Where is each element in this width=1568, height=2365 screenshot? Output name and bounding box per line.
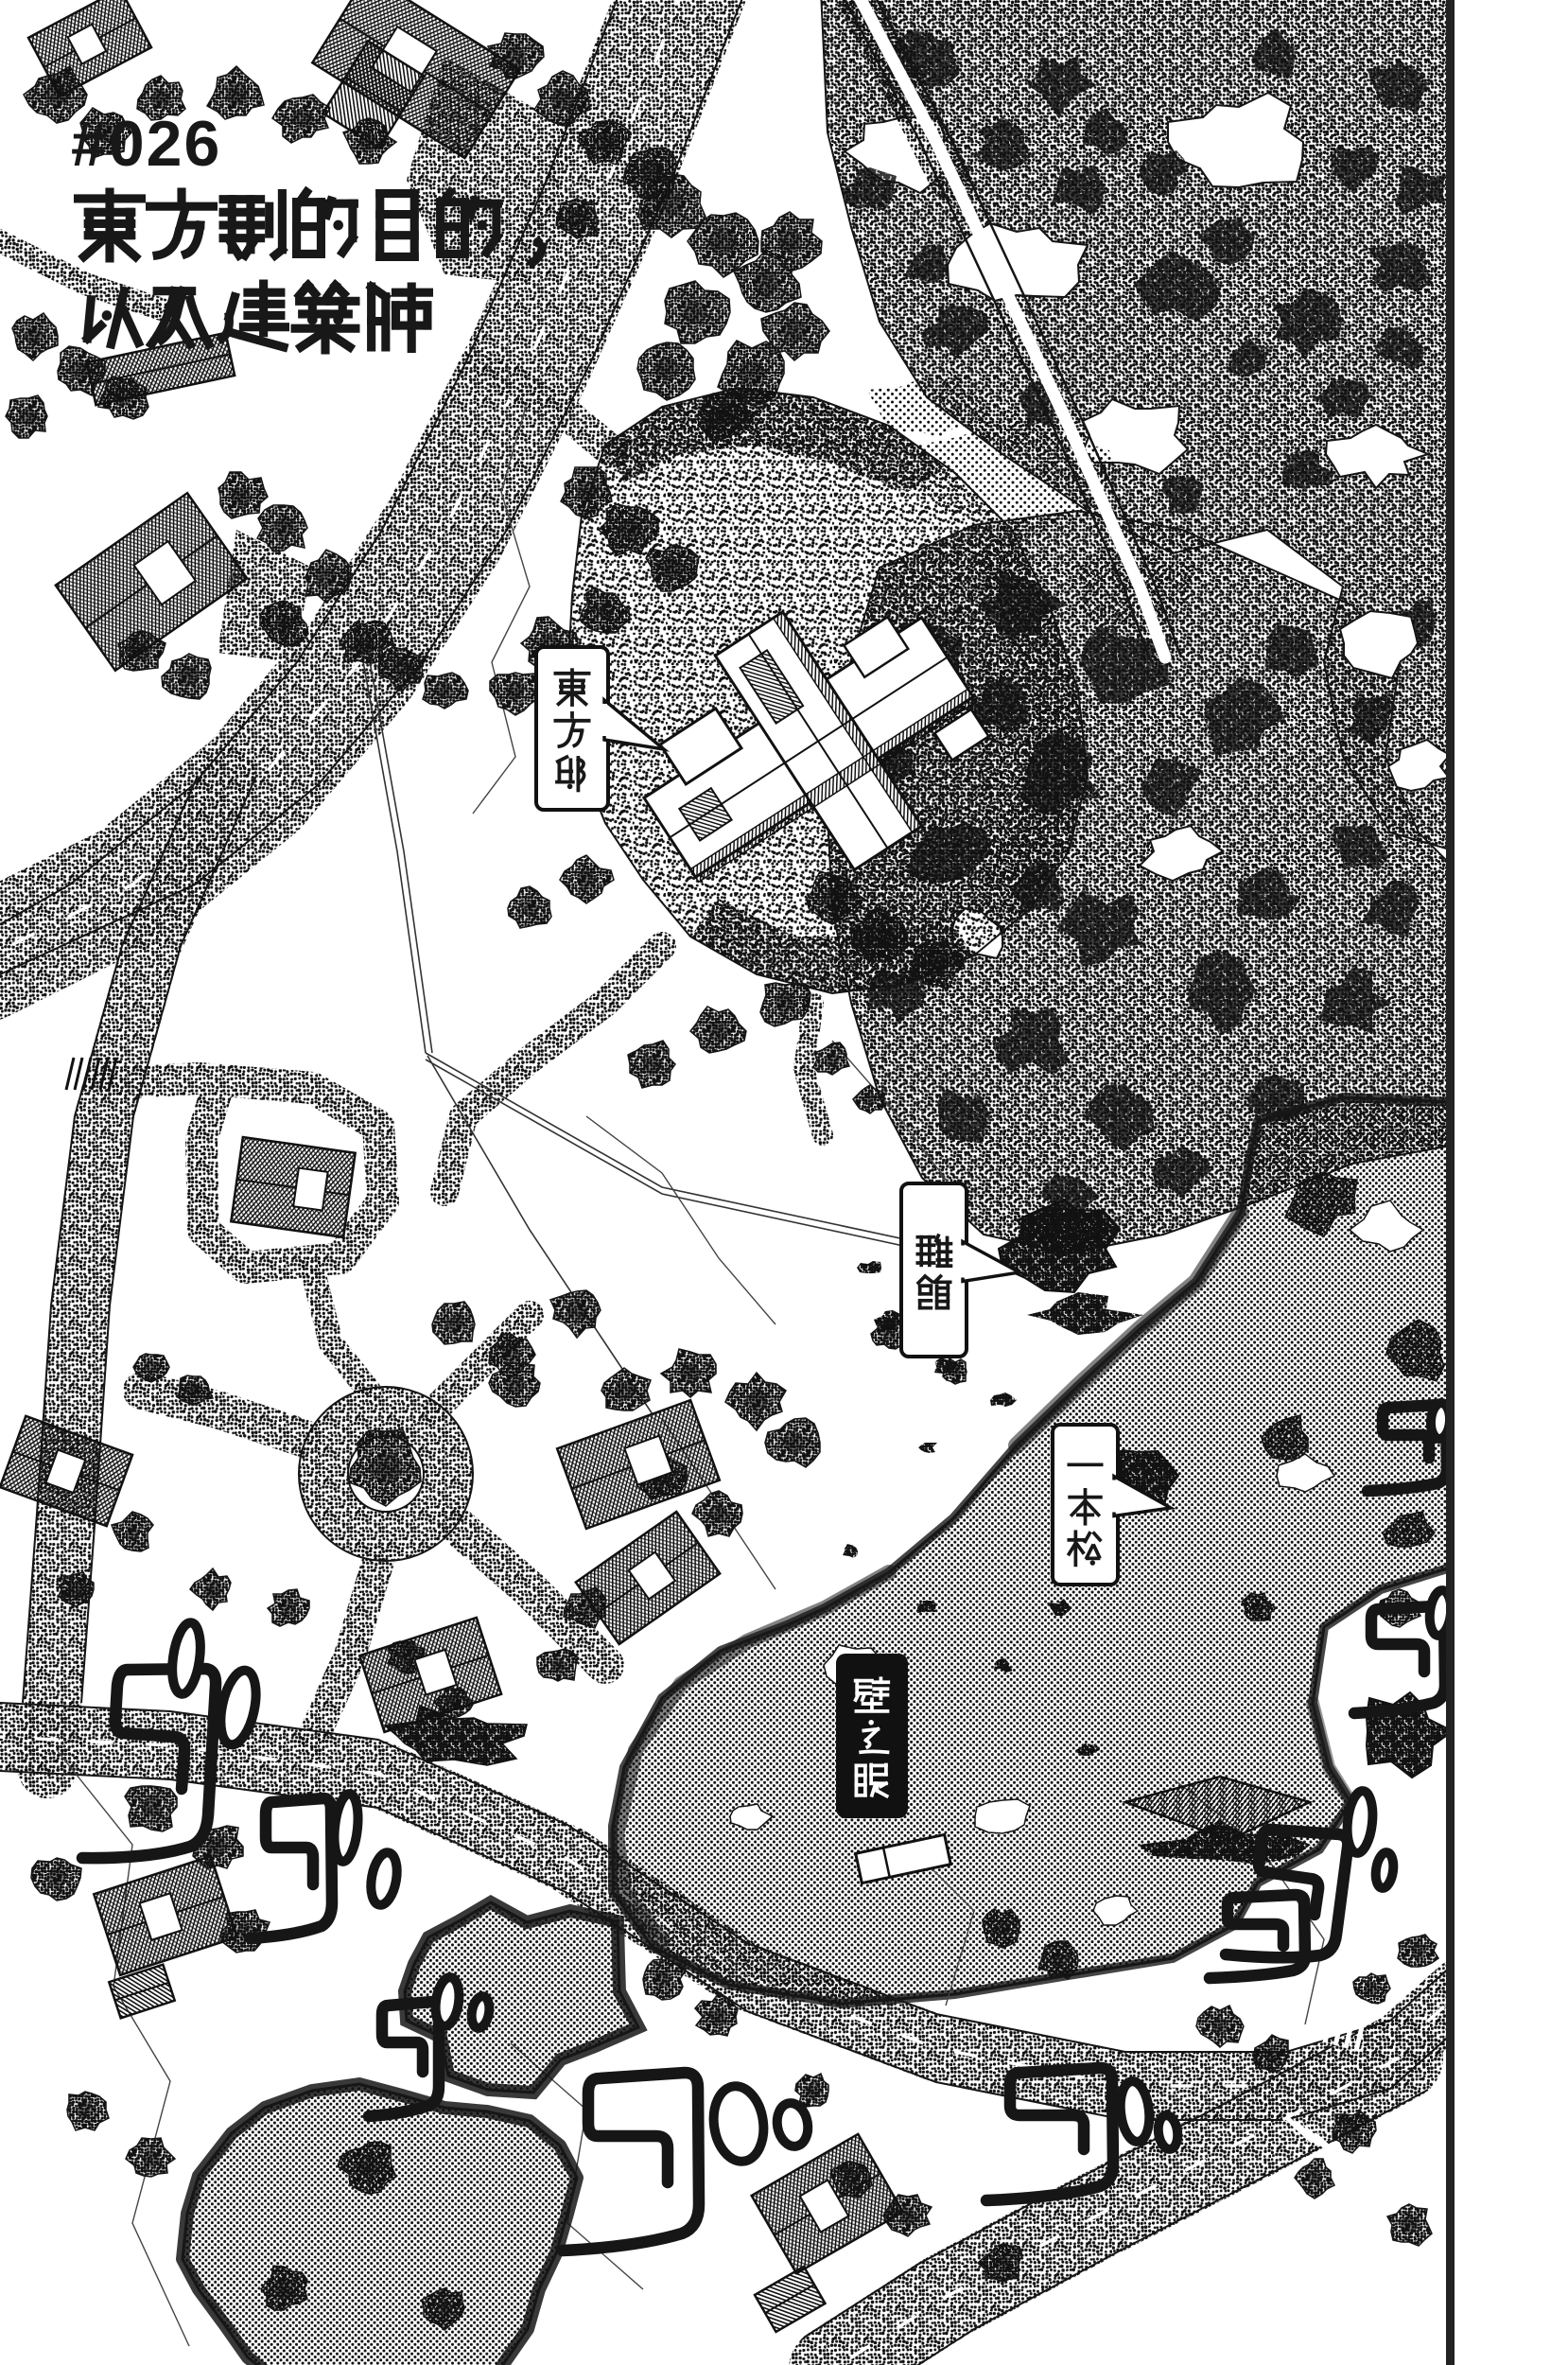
svg-text:#026: #026 bbox=[71, 108, 221, 180]
